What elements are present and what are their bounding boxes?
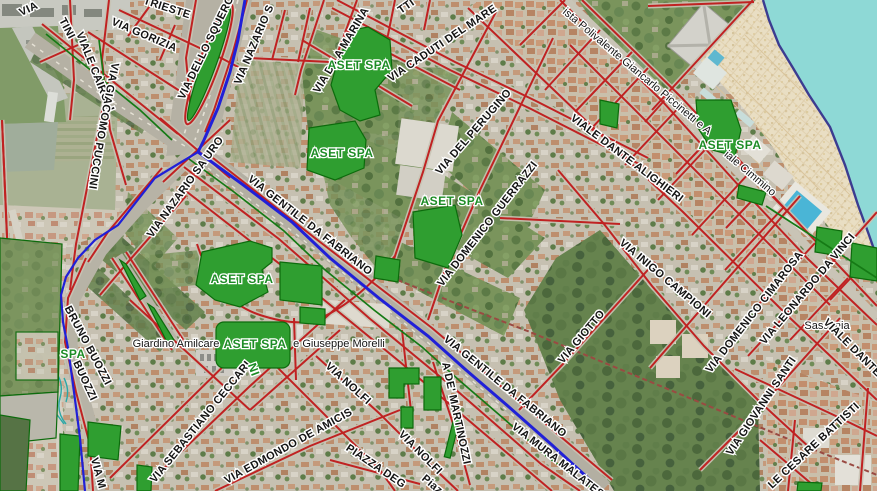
svg-text:SPA: SPA (60, 347, 85, 361)
svg-text:ASET SPA: ASET SPA (327, 58, 390, 72)
svg-text:ASET SPA: ASET SPA (310, 146, 373, 160)
svg-text:Giardino Amilcare: Giardino Amilcare (133, 338, 220, 350)
svg-text:e Giuseppe Morelli: e Giuseppe Morelli (293, 338, 385, 350)
svg-text:ASET SPA: ASET SPA (210, 272, 273, 286)
svg-text:ASET SPA: ASET SPA (223, 337, 286, 351)
svg-text:ASET SPA: ASET SPA (420, 194, 483, 208)
